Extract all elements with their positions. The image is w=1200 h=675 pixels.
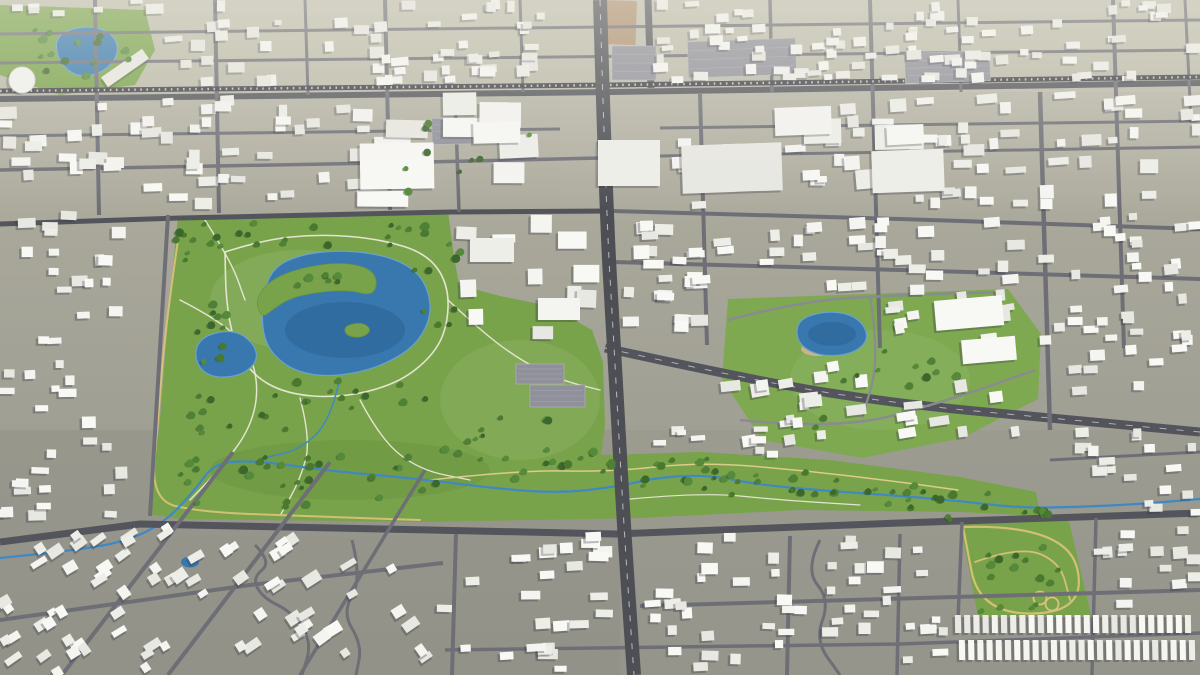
building (907, 310, 920, 320)
tree (812, 491, 819, 498)
tree (995, 555, 1003, 563)
tree (353, 388, 358, 393)
tree (670, 457, 675, 462)
tree (182, 233, 187, 238)
building (1181, 330, 1191, 341)
tree (369, 476, 375, 482)
tree (197, 394, 202, 399)
building (1134, 381, 1145, 390)
building (1182, 490, 1193, 499)
tree (705, 457, 709, 461)
tree (425, 267, 432, 274)
building (724, 533, 736, 542)
building (883, 586, 901, 593)
tree (221, 325, 225, 329)
tree (223, 311, 231, 319)
tree (376, 494, 383, 501)
building (828, 562, 837, 569)
building (500, 652, 514, 661)
building (538, 298, 580, 320)
building (882, 596, 891, 606)
building (558, 232, 587, 249)
building (1097, 640, 1103, 660)
tree (218, 244, 223, 249)
building (1164, 263, 1179, 275)
building (968, 640, 974, 660)
building (112, 227, 126, 239)
building (989, 390, 1003, 403)
tree (755, 473, 759, 477)
tree (281, 483, 285, 487)
building (754, 426, 768, 432)
tree (865, 488, 872, 495)
west-pond (196, 332, 256, 378)
building (104, 484, 115, 494)
building (1177, 526, 1188, 534)
building (465, 577, 479, 586)
building (1116, 600, 1133, 608)
tree (702, 486, 707, 491)
tree (949, 490, 958, 499)
tree (947, 517, 952, 522)
building (1143, 640, 1149, 660)
tree (727, 471, 735, 479)
building (973, 615, 979, 633)
tree (447, 322, 452, 327)
building (931, 250, 944, 261)
building (755, 447, 764, 454)
building (932, 616, 941, 623)
building (767, 451, 778, 458)
building (693, 662, 708, 672)
building (38, 336, 49, 344)
building (35, 405, 48, 411)
building (656, 588, 674, 598)
tree (306, 463, 314, 471)
haze-gradient (0, 0, 1200, 210)
building (982, 615, 988, 633)
building (756, 379, 769, 391)
tree (207, 321, 215, 329)
building (1144, 444, 1155, 453)
tree (564, 460, 573, 469)
building (1119, 543, 1134, 551)
building (1102, 615, 1108, 633)
tree (503, 455, 509, 461)
building (957, 426, 968, 438)
building (543, 544, 557, 554)
building (1097, 317, 1108, 326)
tree (1047, 579, 1054, 586)
building (56, 360, 64, 368)
tree (835, 478, 840, 483)
building (643, 260, 663, 269)
building (1165, 282, 1174, 292)
building (894, 322, 905, 334)
building (1038, 615, 1044, 633)
tree (310, 223, 318, 231)
building (1054, 323, 1065, 332)
building (1176, 615, 1182, 633)
tree (1013, 552, 1019, 558)
building (18, 218, 36, 228)
building (867, 561, 884, 573)
tree (1056, 567, 1061, 572)
building (675, 601, 687, 610)
building (1104, 225, 1116, 236)
tree (209, 300, 217, 308)
building (910, 285, 924, 295)
building (849, 217, 866, 230)
building (1166, 615, 1172, 633)
building (1129, 213, 1138, 220)
building (802, 252, 816, 261)
tree (394, 465, 398, 469)
building (22, 247, 33, 257)
building (102, 443, 111, 451)
building (672, 256, 686, 264)
tree (441, 445, 450, 454)
building (1060, 640, 1066, 660)
tree (454, 450, 462, 458)
tree (246, 471, 254, 479)
building (760, 259, 774, 265)
tree (609, 463, 616, 470)
building (1120, 530, 1134, 538)
building (762, 623, 775, 629)
building (1065, 615, 1071, 633)
building (1078, 640, 1084, 660)
building (1069, 640, 1075, 660)
lake-deep (808, 322, 856, 346)
building (1124, 640, 1130, 660)
building (470, 238, 514, 262)
tree (928, 357, 935, 364)
tree (195, 329, 200, 334)
tree (891, 489, 896, 494)
tree (544, 416, 552, 424)
tree (474, 437, 478, 441)
building (650, 614, 661, 623)
tree (1044, 510, 1052, 518)
building (1099, 457, 1115, 465)
building (926, 270, 943, 280)
building (1172, 344, 1188, 353)
building (674, 321, 689, 332)
tree (457, 248, 465, 256)
building (701, 630, 714, 641)
building (1150, 546, 1164, 556)
tree (998, 604, 1004, 610)
building (689, 248, 703, 258)
tree (201, 359, 207, 365)
building (623, 316, 639, 326)
tree (432, 480, 440, 488)
building (1075, 427, 1089, 437)
tree (696, 458, 704, 466)
building (840, 542, 857, 550)
tree (953, 372, 961, 380)
building (826, 280, 837, 291)
tree (803, 469, 809, 475)
building (1133, 428, 1141, 437)
tree (601, 469, 605, 473)
building (1149, 358, 1164, 366)
building (697, 542, 713, 554)
building (730, 654, 741, 665)
building (751, 436, 766, 443)
building (1083, 365, 1097, 373)
tree (405, 454, 412, 461)
building (1088, 640, 1094, 660)
building (920, 624, 937, 635)
building (585, 532, 601, 542)
tree (907, 497, 911, 501)
tree (419, 487, 426, 494)
tree (1030, 605, 1035, 610)
tree (589, 448, 598, 457)
tree (423, 396, 429, 402)
tree (185, 479, 192, 486)
tree (293, 378, 302, 387)
tree (389, 223, 394, 228)
tree (435, 321, 442, 328)
building (569, 620, 589, 629)
building (590, 592, 608, 600)
tree (251, 220, 258, 227)
building (692, 275, 711, 285)
tree (335, 378, 342, 385)
building (885, 547, 901, 558)
building (0, 509, 6, 517)
tree (179, 472, 183, 476)
building (668, 647, 681, 655)
building (59, 389, 77, 397)
building (964, 615, 970, 633)
building (540, 570, 555, 579)
building (1157, 615, 1163, 633)
building (916, 570, 928, 576)
tree (263, 455, 268, 460)
tree (207, 396, 214, 403)
building (47, 449, 57, 458)
building (1010, 615, 1016, 633)
building (460, 279, 477, 297)
building (1132, 263, 1142, 270)
building (528, 269, 543, 285)
building (1042, 640, 1048, 660)
tree (1023, 510, 1028, 515)
building (701, 650, 718, 660)
tree (295, 282, 301, 288)
tree (173, 236, 180, 243)
building (1094, 548, 1112, 555)
building (959, 640, 965, 660)
building (1115, 233, 1126, 242)
tree (296, 480, 301, 485)
tree (305, 455, 311, 461)
tree (187, 411, 195, 419)
tree (936, 495, 944, 503)
building (82, 416, 96, 428)
building (827, 586, 835, 594)
building (51, 385, 59, 392)
building (1070, 305, 1082, 312)
building (932, 649, 948, 657)
tree (280, 240, 286, 246)
building (1032, 640, 1038, 660)
tree (278, 462, 285, 469)
tree (186, 251, 190, 255)
building (44, 229, 57, 236)
building (39, 485, 51, 493)
building (701, 563, 718, 575)
tree (1036, 574, 1044, 582)
building (109, 306, 123, 316)
tree (326, 278, 331, 283)
building (1123, 317, 1134, 323)
building (1093, 615, 1099, 633)
building (1068, 365, 1082, 374)
haze-overlay (0, 0, 1200, 210)
building (57, 286, 72, 292)
tree (906, 382, 914, 390)
tree (273, 393, 278, 398)
building (775, 640, 783, 648)
building (437, 605, 452, 613)
building (533, 326, 554, 339)
building (918, 226, 934, 237)
building (777, 594, 792, 605)
building (804, 394, 823, 408)
building (845, 535, 856, 542)
tree (550, 458, 557, 465)
tree (820, 415, 827, 422)
tree (886, 501, 892, 507)
building (1190, 509, 1200, 516)
building (1173, 546, 1189, 559)
building (1172, 579, 1187, 589)
building (1068, 317, 1083, 325)
building (1072, 386, 1087, 395)
building (778, 629, 794, 635)
building (832, 617, 844, 624)
tree (874, 487, 878, 491)
building (115, 467, 127, 479)
building (1038, 255, 1054, 263)
tree (498, 415, 503, 420)
building (998, 260, 1009, 272)
building (653, 440, 666, 446)
tree (447, 242, 452, 247)
tree (481, 433, 485, 437)
tree (479, 427, 484, 432)
tree (684, 477, 693, 486)
tree (1023, 557, 1029, 563)
building (566, 561, 582, 571)
building (596, 609, 613, 617)
tree (421, 222, 430, 231)
building (1188, 572, 1200, 581)
building (769, 247, 784, 256)
building (1152, 640, 1158, 660)
building (468, 309, 483, 325)
building (0, 388, 15, 394)
building (456, 226, 477, 239)
tree (193, 466, 200, 473)
tree (350, 406, 354, 410)
building (807, 222, 823, 233)
lake-island (345, 323, 370, 337)
building (1051, 640, 1057, 660)
tree (186, 459, 194, 467)
building (691, 315, 708, 326)
tree (986, 552, 991, 557)
tree (200, 430, 205, 435)
building (1111, 615, 1117, 633)
tree (543, 460, 549, 466)
tree (544, 447, 550, 453)
building (822, 627, 838, 637)
tree (386, 234, 391, 239)
building (1130, 328, 1143, 334)
building (1127, 252, 1139, 262)
building (633, 245, 649, 259)
building (1088, 446, 1099, 456)
tree (911, 482, 918, 489)
building (659, 275, 673, 283)
building (1188, 221, 1200, 230)
building (838, 283, 852, 292)
tree (904, 489, 912, 497)
tree (451, 306, 457, 312)
building (61, 211, 77, 221)
building (1134, 640, 1140, 660)
tree (305, 273, 314, 282)
tree (316, 460, 323, 467)
building (1007, 240, 1025, 250)
building (955, 615, 961, 633)
building (1107, 466, 1116, 473)
building (1188, 443, 1196, 452)
building (720, 380, 741, 392)
building (589, 552, 609, 562)
building (535, 617, 551, 629)
tree (236, 230, 243, 237)
building (934, 295, 1004, 331)
building (1040, 335, 1052, 345)
tree (200, 408, 207, 415)
building (875, 236, 886, 248)
building (1124, 474, 1137, 481)
tree (211, 310, 216, 315)
building (1139, 272, 1152, 282)
tree (797, 489, 805, 497)
building (1125, 345, 1137, 355)
building (977, 640, 983, 660)
tree (520, 468, 527, 475)
tree (388, 243, 393, 248)
tree (979, 608, 985, 614)
tree (191, 237, 197, 243)
building (103, 278, 111, 286)
building (794, 235, 803, 247)
building (83, 437, 97, 444)
building (844, 604, 855, 612)
tree (790, 488, 794, 492)
building (1180, 640, 1186, 660)
building (1023, 640, 1029, 660)
